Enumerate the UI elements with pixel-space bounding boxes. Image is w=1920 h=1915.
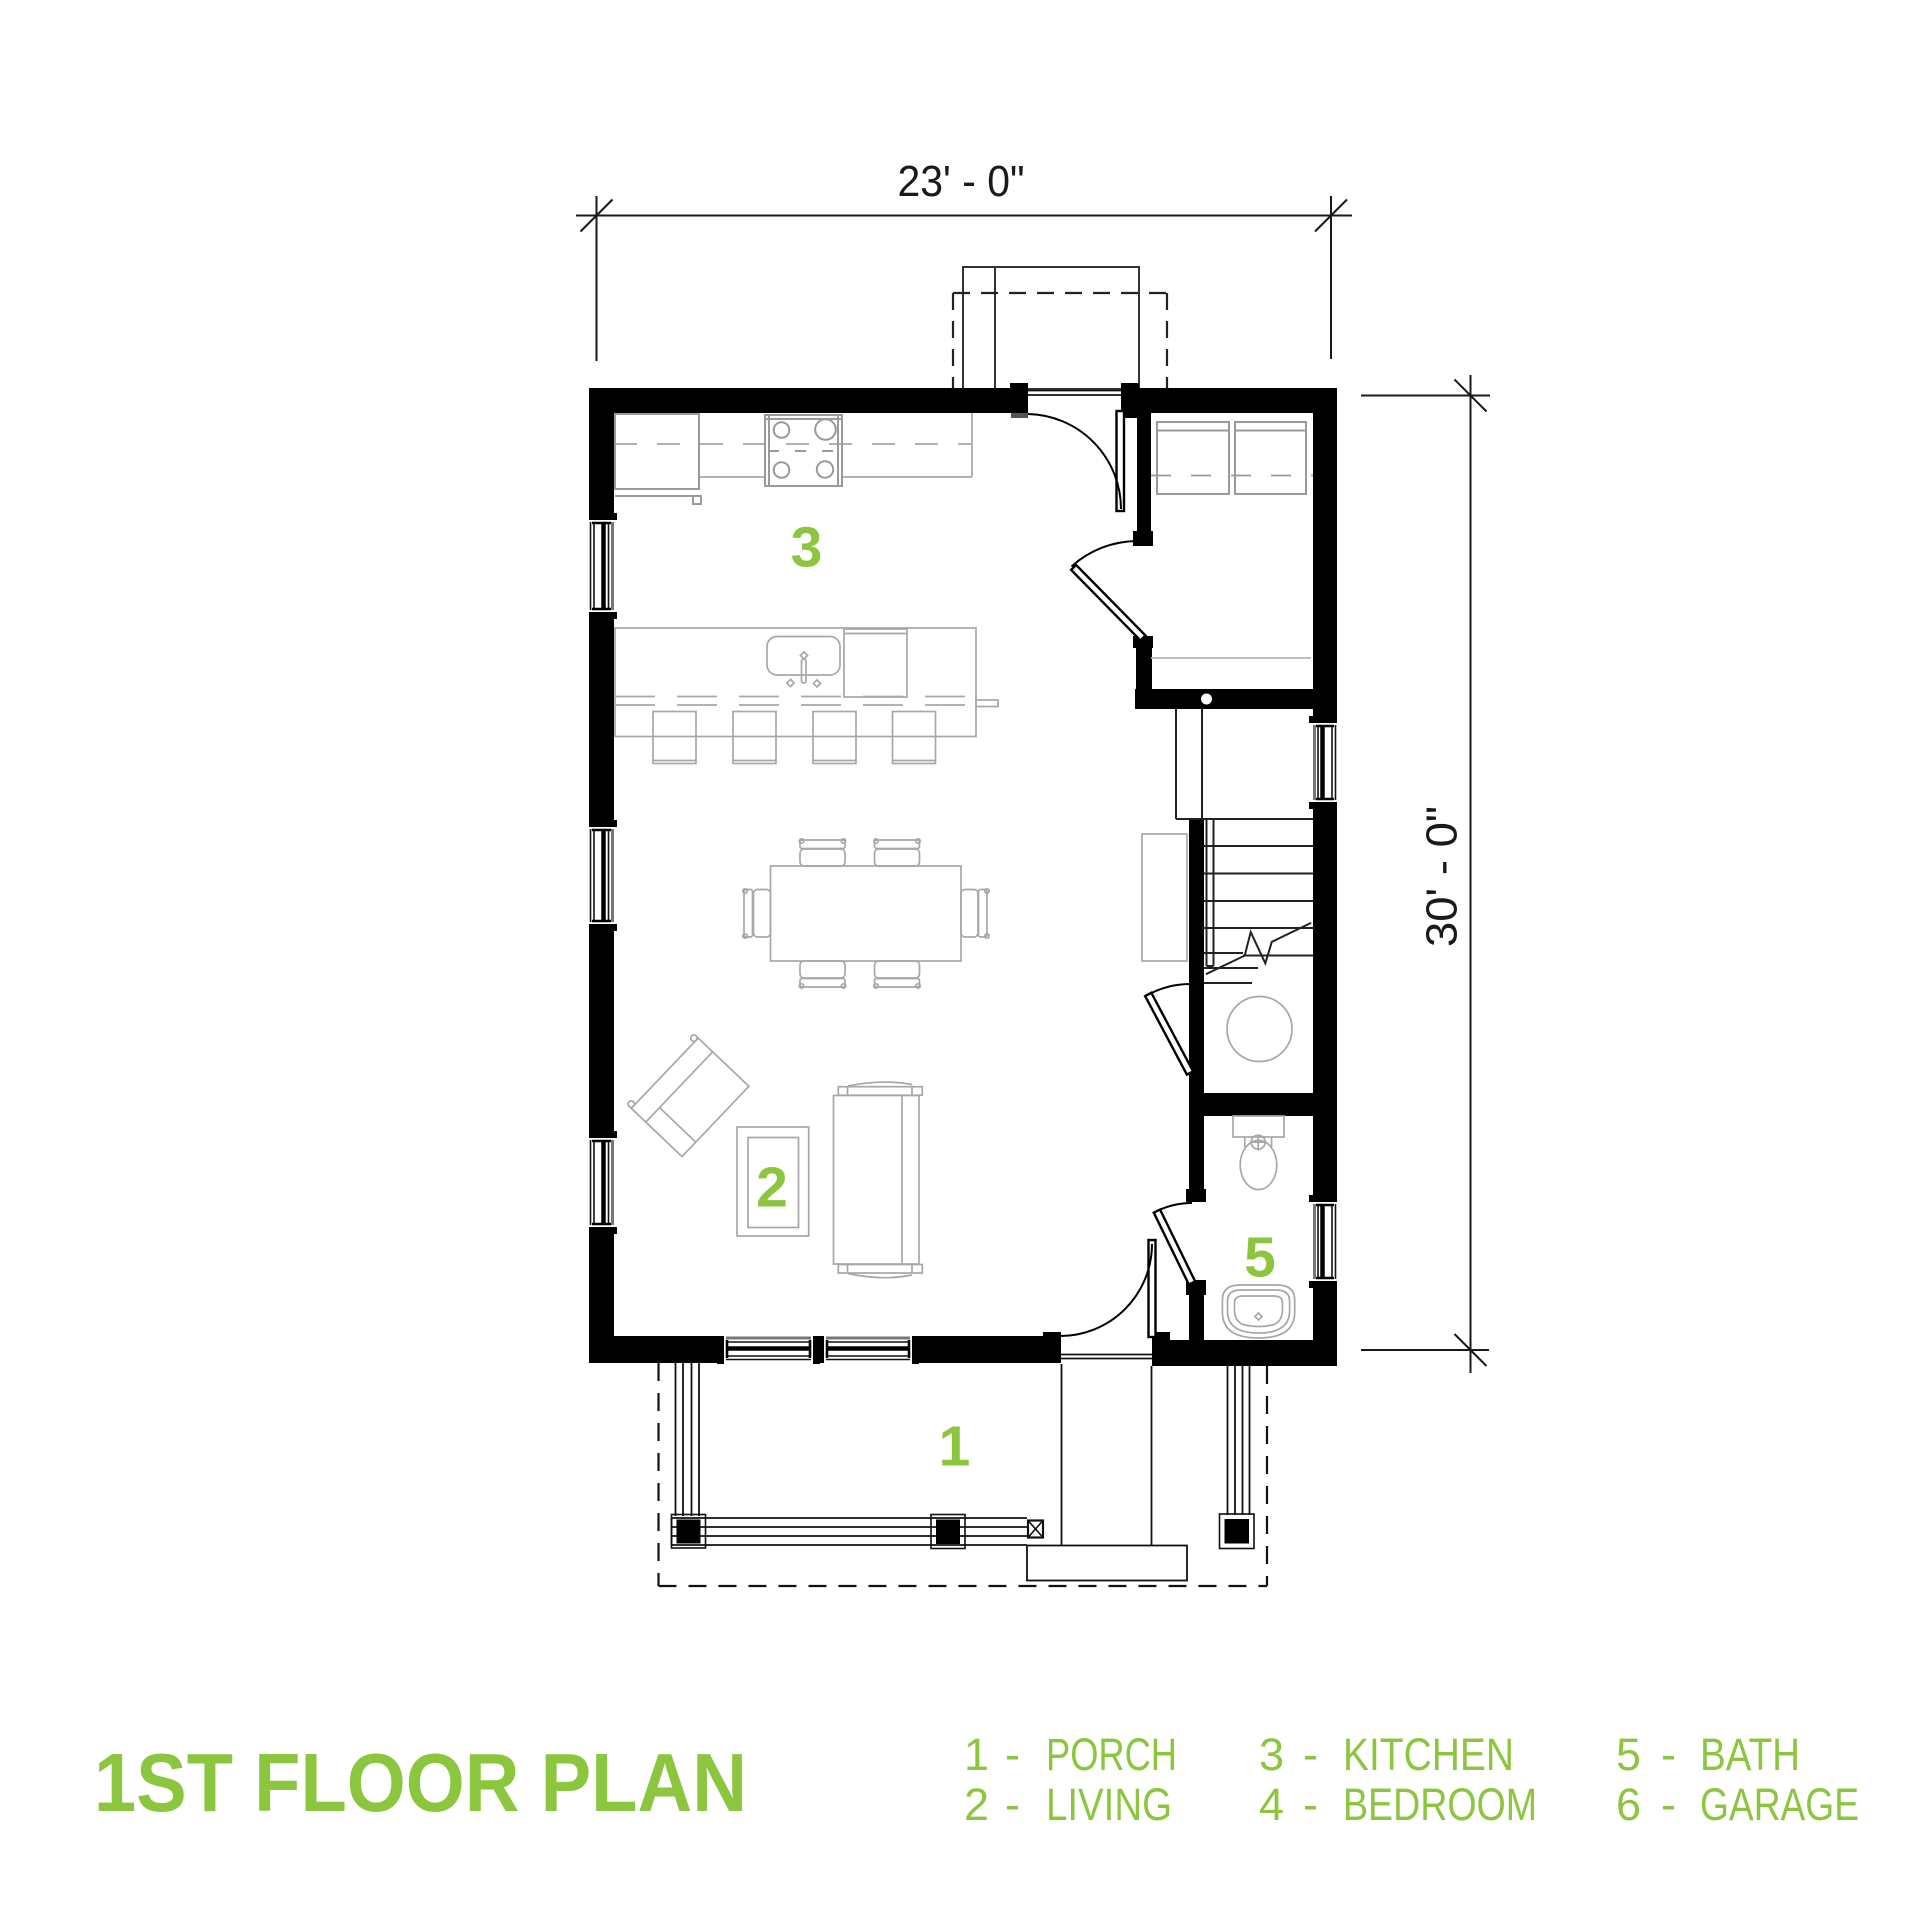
svg-text:-: -: [1005, 1729, 1020, 1780]
svg-text:23' - 0": 23' - 0": [898, 158, 1025, 206]
svg-text:PORCH: PORCH: [1046, 1729, 1177, 1780]
svg-text:GARAGE: GARAGE: [1700, 1779, 1859, 1830]
svg-text:1ST FLOOR PLAN: 1ST FLOOR PLAN: [94, 1736, 747, 1829]
svg-text:BATH: BATH: [1700, 1729, 1800, 1780]
svg-text:6: 6: [1616, 1779, 1641, 1830]
svg-text:3: 3: [1259, 1729, 1284, 1780]
svg-text:-: -: [1303, 1729, 1318, 1780]
svg-text:-: -: [1661, 1779, 1676, 1830]
svg-text:5: 5: [1616, 1729, 1641, 1780]
svg-text:BEDROOM: BEDROOM: [1343, 1779, 1537, 1830]
svg-text:LIVING: LIVING: [1046, 1779, 1172, 1830]
svg-text:30' - 0": 30' - 0": [1419, 806, 1467, 947]
svg-text:3: 3: [791, 516, 823, 580]
svg-text:-: -: [1005, 1779, 1020, 1830]
svg-text:4: 4: [1259, 1779, 1284, 1830]
svg-text:1: 1: [964, 1729, 989, 1780]
svg-text:1: 1: [939, 1415, 971, 1479]
svg-text:KITCHEN: KITCHEN: [1343, 1729, 1514, 1780]
svg-text:-: -: [1303, 1779, 1318, 1830]
svg-text:2: 2: [756, 1156, 788, 1220]
svg-text:5: 5: [1244, 1226, 1276, 1290]
svg-text:-: -: [1661, 1729, 1676, 1780]
svg-text:2: 2: [964, 1779, 989, 1830]
